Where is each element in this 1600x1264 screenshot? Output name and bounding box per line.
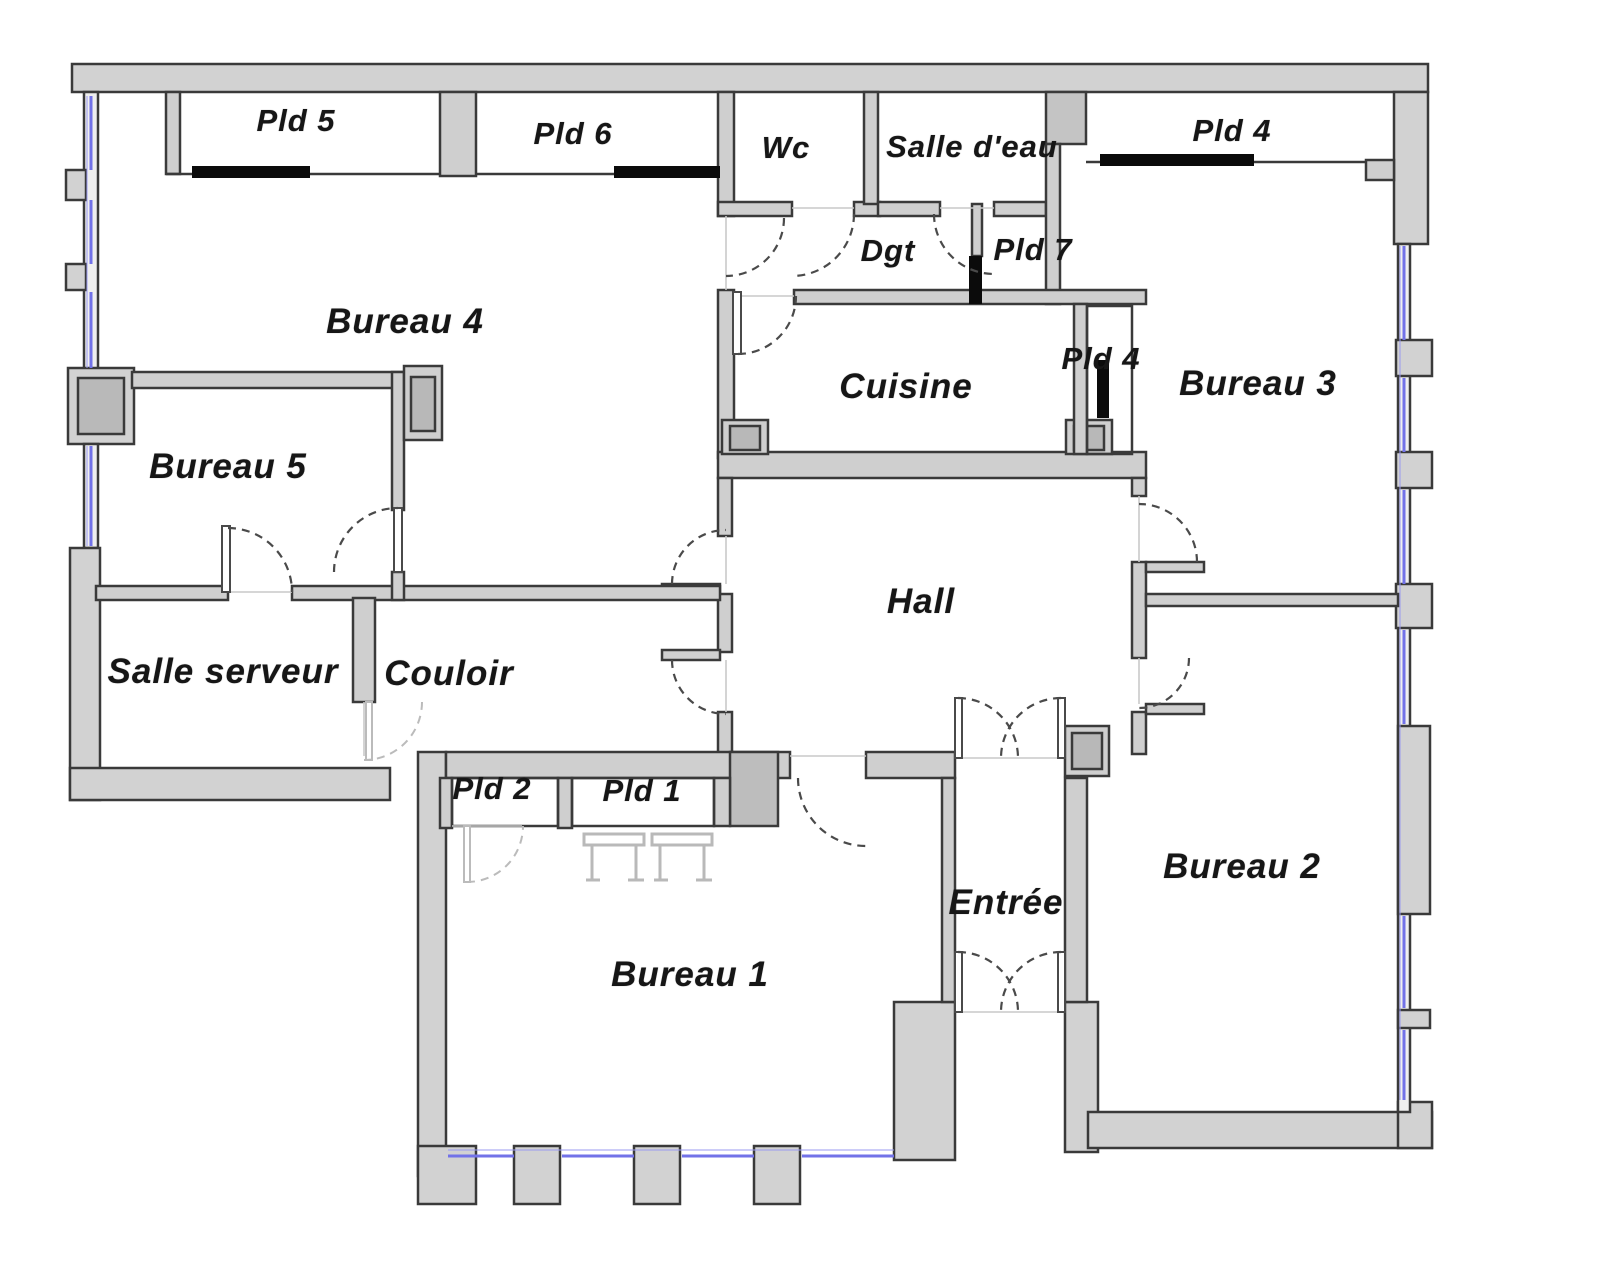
room-label-pld-4-cuisine: Pld 4 [1061,341,1140,377]
desk-icons [584,834,712,880]
room-label-bureau-1: Bureau 1 [611,955,769,995]
room-label-bureau-4: Bureau 4 [326,302,484,342]
room-label-salle-d-eau: Salle d'eau [886,129,1058,165]
window-lines [91,96,1404,1156]
room-label-couloir: Couloir [384,654,513,694]
room-label-bureau-2: Bureau 2 [1163,847,1321,887]
room-label-pld-5: Pld 5 [256,103,335,139]
room-label-wc: Wc [762,130,811,166]
room-label-pld-4-haut: Pld 4 [1192,113,1271,149]
room-label-cuisine: Cuisine [839,367,972,407]
floorplan-drawing [0,0,1600,1264]
floorplan: Pld 5 Pld 6 Wc Salle d'eau Pld 4 Dgt Pld… [0,0,1600,1264]
closet-lines [166,162,1366,826]
room-label-dgt: Dgt [861,233,916,269]
room-label-bureau-3: Bureau 3 [1179,364,1337,404]
room-label-pld-2: Pld 2 [452,771,531,807]
room-label-pld-7: Pld 7 [993,232,1072,268]
room-label-salle-serveur: Salle serveur [108,652,339,692]
room-label-hall: Hall [887,582,955,622]
exterior-walls [66,64,1432,1204]
room-label-bureau-5: Bureau 5 [149,447,307,487]
room-label-pld-1: Pld 1 [602,773,681,809]
room-label-entree: Entrée [949,883,1064,923]
room-label-pld-6: Pld 6 [533,116,612,152]
